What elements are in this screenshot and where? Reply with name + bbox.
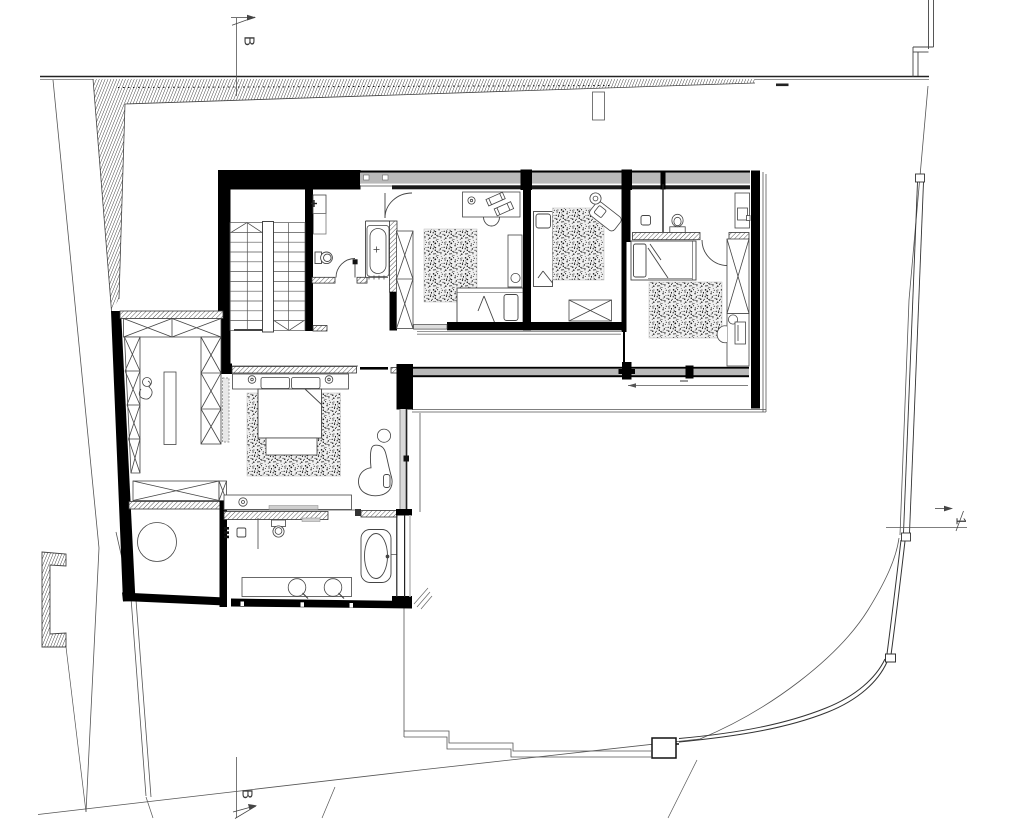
svg-text:B: B xyxy=(241,36,258,46)
svg-text:1: 1 xyxy=(954,517,970,525)
svg-text:B: B xyxy=(239,789,256,799)
